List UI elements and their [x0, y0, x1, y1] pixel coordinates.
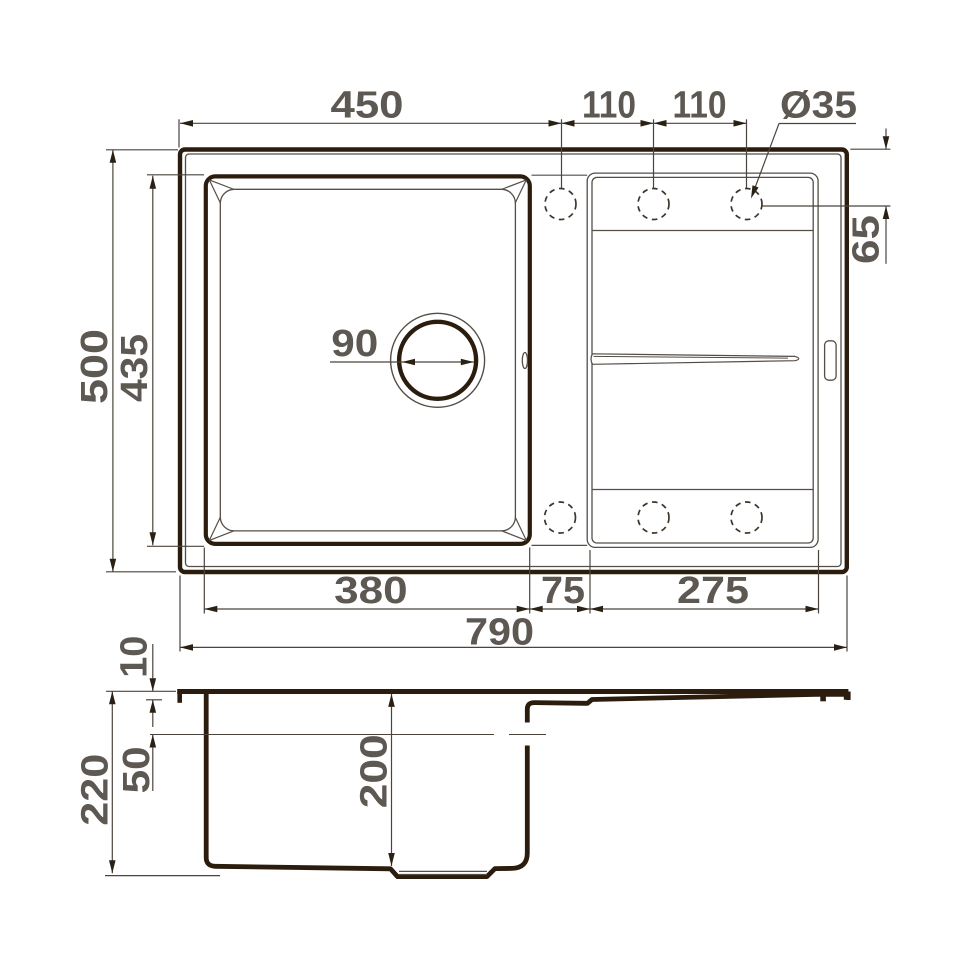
- svg-text:65: 65: [846, 215, 888, 264]
- svg-text:200: 200: [354, 734, 396, 808]
- svg-text:110: 110: [673, 85, 727, 127]
- svg-text:110: 110: [582, 85, 636, 127]
- svg-text:380: 380: [334, 570, 408, 612]
- svg-text:790: 790: [465, 612, 534, 654]
- svg-text:435: 435: [114, 334, 156, 402]
- svg-text:500: 500: [74, 329, 116, 404]
- svg-text:90: 90: [331, 323, 378, 365]
- svg-text:50: 50: [116, 746, 158, 793]
- svg-text:75: 75: [541, 570, 585, 612]
- svg-text:Ø35: Ø35: [780, 85, 857, 127]
- svg-text:275: 275: [677, 570, 749, 612]
- svg-text:450: 450: [331, 85, 404, 127]
- svg-text:10: 10: [114, 636, 156, 678]
- svg-text:220: 220: [75, 754, 117, 826]
